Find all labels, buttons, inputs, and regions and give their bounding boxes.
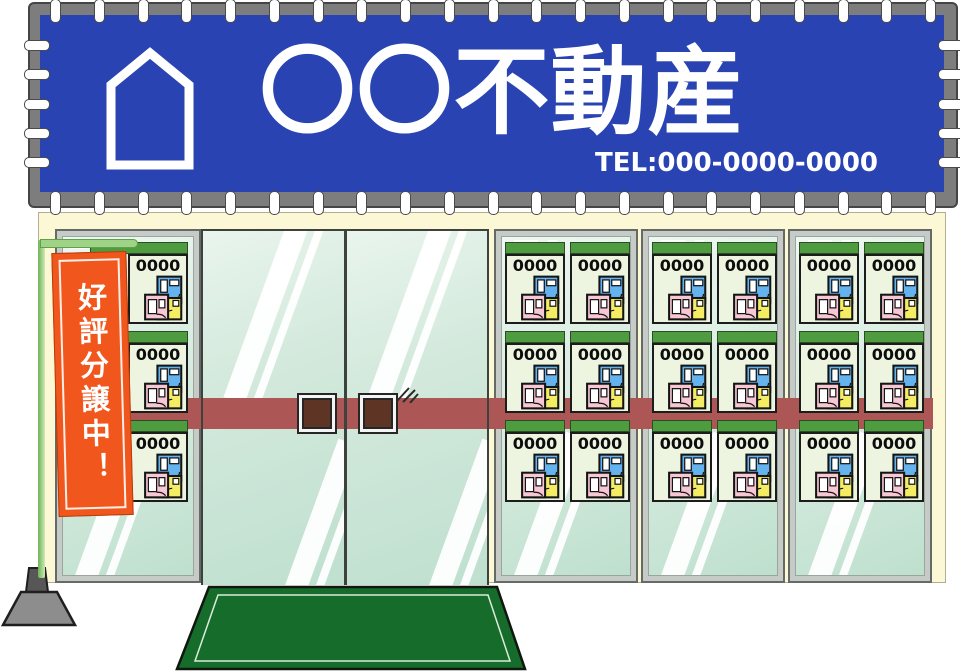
banner-ties-right [938, 40, 960, 168]
flyer-header-bar [652, 420, 712, 432]
flyer-price: 0000 [578, 257, 623, 275]
banner-tie [488, 0, 499, 23]
banner-tie [225, 0, 236, 23]
banner-tie [794, 191, 805, 215]
banner-tie [531, 0, 542, 23]
flyer-price: 0000 [660, 435, 705, 453]
banner-tie [663, 191, 674, 215]
floorplan-icon [585, 453, 627, 499]
floorplan-icon [732, 364, 774, 410]
flyer-card: 0000 [717, 254, 777, 324]
banner-tie [94, 0, 105, 23]
nobori-inner-border [59, 258, 127, 510]
property-flyer: 0000 [864, 242, 924, 324]
flyer-card: 0000 [652, 254, 712, 324]
floorplan-icon [667, 453, 709, 499]
property-flyer: 0000 [864, 331, 924, 413]
banner-tie [938, 99, 960, 110]
flyer-price: 0000 [136, 346, 181, 364]
flyer-header-bar [799, 420, 859, 432]
flyer-price: 0000 [513, 257, 558, 275]
flyer-header-bar [652, 331, 712, 343]
property-flyer: 0000 [717, 331, 777, 413]
banner-tie [575, 0, 586, 23]
flyer-price: 0000 [807, 346, 852, 364]
flyer-card: 0000 [717, 343, 777, 413]
banner-tie [138, 0, 149, 23]
banner-tie [938, 40, 960, 51]
banner-tie [444, 0, 455, 23]
property-flyer: 0000 [505, 242, 565, 324]
flyer-header-bar [570, 420, 630, 432]
door-handle-plate [302, 398, 332, 429]
flyer-header-bar [570, 331, 630, 343]
banner-ties-left [24, 40, 48, 168]
property-flyer: 0000 [799, 242, 859, 324]
banner-tie [938, 69, 960, 80]
property-flyer: 0000 [652, 420, 712, 502]
flyer-price: 0000 [725, 257, 770, 275]
glass-reflection [223, 230, 333, 410]
flyer-price: 0000 [807, 257, 852, 275]
flyer-price: 0000 [578, 435, 623, 453]
banner-tie [925, 0, 936, 23]
banner-tie [706, 191, 717, 215]
banner-tie [925, 191, 936, 215]
flyer-card: 0000 [864, 432, 924, 502]
banner-tie [356, 191, 367, 215]
banner-tie [313, 191, 324, 215]
flyer-header-bar [799, 331, 859, 343]
floorplan-icon [143, 275, 185, 321]
door-frame-edge [201, 229, 203, 585]
banner-tie [400, 191, 411, 215]
flyer-header-bar [864, 331, 924, 343]
banner-tie [531, 191, 542, 215]
banner-tie [488, 191, 499, 215]
banner-tie [24, 40, 50, 51]
flyer-price: 0000 [725, 435, 770, 453]
property-flyer: 0000 [717, 242, 777, 324]
floorplan-icon [879, 453, 921, 499]
banner-tie [181, 191, 192, 215]
flyer-card: 0000 [864, 343, 924, 413]
property-flyer: 0000 [864, 420, 924, 502]
floorplan-icon [814, 275, 856, 321]
banner-tie [50, 191, 61, 215]
floorplan-icon [667, 275, 709, 321]
property-flyer: 0000 [570, 331, 630, 413]
flyer-card: 0000 [799, 343, 859, 413]
banner-tie [938, 157, 960, 168]
floorplan-icon [520, 275, 562, 321]
banner-tie [575, 191, 586, 215]
flyer-header-bar [505, 331, 565, 343]
property-flyer: 0000 [799, 331, 859, 413]
flyer-card: 0000 [505, 343, 565, 413]
banner-tie [313, 0, 324, 23]
banner-tie [838, 0, 849, 23]
flyer-grid-2: 0000 0000 0000 0000 0000 [652, 242, 777, 502]
motion-lines-icon [394, 379, 420, 403]
floorplan-icon [667, 364, 709, 410]
floorplan-icon [520, 364, 562, 410]
flyer-grid-1: 0000 0000 0000 0000 0000 [505, 242, 630, 502]
floorplan-icon [814, 364, 856, 410]
flyer-card: 0000 [128, 343, 188, 413]
company-name: 〇〇不動産 [207, 26, 797, 158]
banner-tie [938, 128, 960, 139]
flyer-price: 0000 [725, 346, 770, 364]
flyer-price: 0000 [872, 435, 917, 453]
flyer-price: 0000 [513, 435, 558, 453]
flyer-card: 0000 [652, 343, 712, 413]
banner-tie [225, 191, 236, 215]
banner-tie [619, 0, 630, 23]
banner-tie [881, 0, 892, 23]
flyer-card: 0000 [128, 432, 188, 502]
property-flyer: 0000 [570, 242, 630, 324]
banner-tie [50, 0, 61, 23]
flyer-card: 0000 [799, 432, 859, 502]
banner-tie [444, 191, 455, 215]
flyer-price: 0000 [807, 435, 852, 453]
nobori-banner: 好評分譲中！ [51, 251, 133, 517]
property-flyer: 0000 [505, 331, 565, 413]
property-flyer: 0000 [652, 242, 712, 324]
phone-number: TEL:000-0000-0000 [595, 148, 878, 178]
banner-tie [24, 157, 50, 168]
flyer-card: 0000 [505, 432, 565, 502]
flyer-card: 0000 [799, 254, 859, 324]
property-flyer: 0000 [570, 420, 630, 502]
glass-reflection [404, 439, 487, 585]
door-handle-right[interactable] [358, 393, 398, 434]
flyer-price: 0000 [136, 435, 181, 453]
banner-tie [838, 191, 849, 215]
nobori-crossbar [40, 239, 138, 248]
banner-tie [24, 69, 50, 80]
entrance-mat [160, 585, 540, 671]
flyer-price: 0000 [660, 257, 705, 275]
flyer-header-bar [570, 242, 630, 254]
floorplan-icon [520, 453, 562, 499]
banner-tie [269, 0, 280, 23]
nobori-base-stand [0, 565, 90, 629]
flyer-card: 0000 [652, 432, 712, 502]
glass-reflection [367, 230, 477, 410]
flyer-price: 0000 [872, 346, 917, 364]
floorplan-icon [585, 275, 627, 321]
banner-ties-bottom [50, 191, 936, 213]
property-flyer: 0000 [505, 420, 565, 502]
banner-tie [881, 191, 892, 215]
house-outline-icon [104, 46, 196, 172]
flyer-header-bar [864, 420, 924, 432]
flyer-header-bar [505, 420, 565, 432]
real-estate-storefront-illustration: 0000 0000 0000 0000 [0, 0, 960, 671]
door-handle-left[interactable] [297, 393, 337, 434]
banner-tie [269, 191, 280, 215]
door-frame-edge [487, 229, 489, 585]
floorplan-icon [879, 364, 921, 410]
banner-tie [706, 0, 717, 23]
banner-tie [619, 191, 630, 215]
flyer-card: 0000 [505, 254, 565, 324]
flyer-header-bar [505, 242, 565, 254]
flyer-price: 0000 [660, 346, 705, 364]
door-handle-plate [363, 398, 393, 429]
banner-ties-top [50, 0, 936, 21]
floorplan-icon [143, 453, 185, 499]
flyer-price: 0000 [872, 257, 917, 275]
banner-tie [750, 0, 761, 23]
flyer-card: 0000 [128, 254, 188, 324]
banner-tie [138, 191, 149, 215]
flyer-price: 0000 [136, 257, 181, 275]
door-center-mullion [344, 229, 347, 585]
property-flyer: 0000 [799, 420, 859, 502]
banner-tie [356, 0, 367, 23]
flyer-header-bar [717, 242, 777, 254]
glass-reflection [260, 439, 344, 585]
flyer-card: 0000 [570, 254, 630, 324]
property-flyer: 0000 [717, 420, 777, 502]
floorplan-icon [879, 275, 921, 321]
flyer-price: 0000 [578, 346, 623, 364]
banner-tie [794, 0, 805, 23]
store-sign-banner: 〇〇不動産 TEL:000-0000-0000 [28, 2, 958, 208]
floorplan-icon [732, 453, 774, 499]
flyer-header-bar [864, 242, 924, 254]
floorplan-icon [585, 364, 627, 410]
flyer-price: 0000 [513, 346, 558, 364]
flyer-card: 0000 [570, 432, 630, 502]
banner-tie [663, 0, 674, 23]
flyer-card: 0000 [717, 432, 777, 502]
flyer-header-bar [717, 420, 777, 432]
property-flyer: 0000 [652, 331, 712, 413]
banner-tie [94, 191, 105, 215]
flyer-header-bar [717, 331, 777, 343]
flyer-card: 0000 [570, 343, 630, 413]
flyer-grid-3: 0000 0000 0000 0000 0000 [799, 242, 924, 502]
banner-tie [181, 0, 192, 23]
banner-tie [24, 99, 50, 110]
flyer-card: 0000 [864, 254, 924, 324]
flyer-header-bar [652, 242, 712, 254]
flyer-header-bar [799, 242, 859, 254]
floorplan-icon [143, 364, 185, 410]
banner-tie [400, 0, 411, 23]
floorplan-icon [732, 275, 774, 321]
floorplan-icon [814, 453, 856, 499]
banner-tie [750, 191, 761, 215]
nobori-pole [38, 240, 45, 578]
banner-tie [24, 128, 50, 139]
